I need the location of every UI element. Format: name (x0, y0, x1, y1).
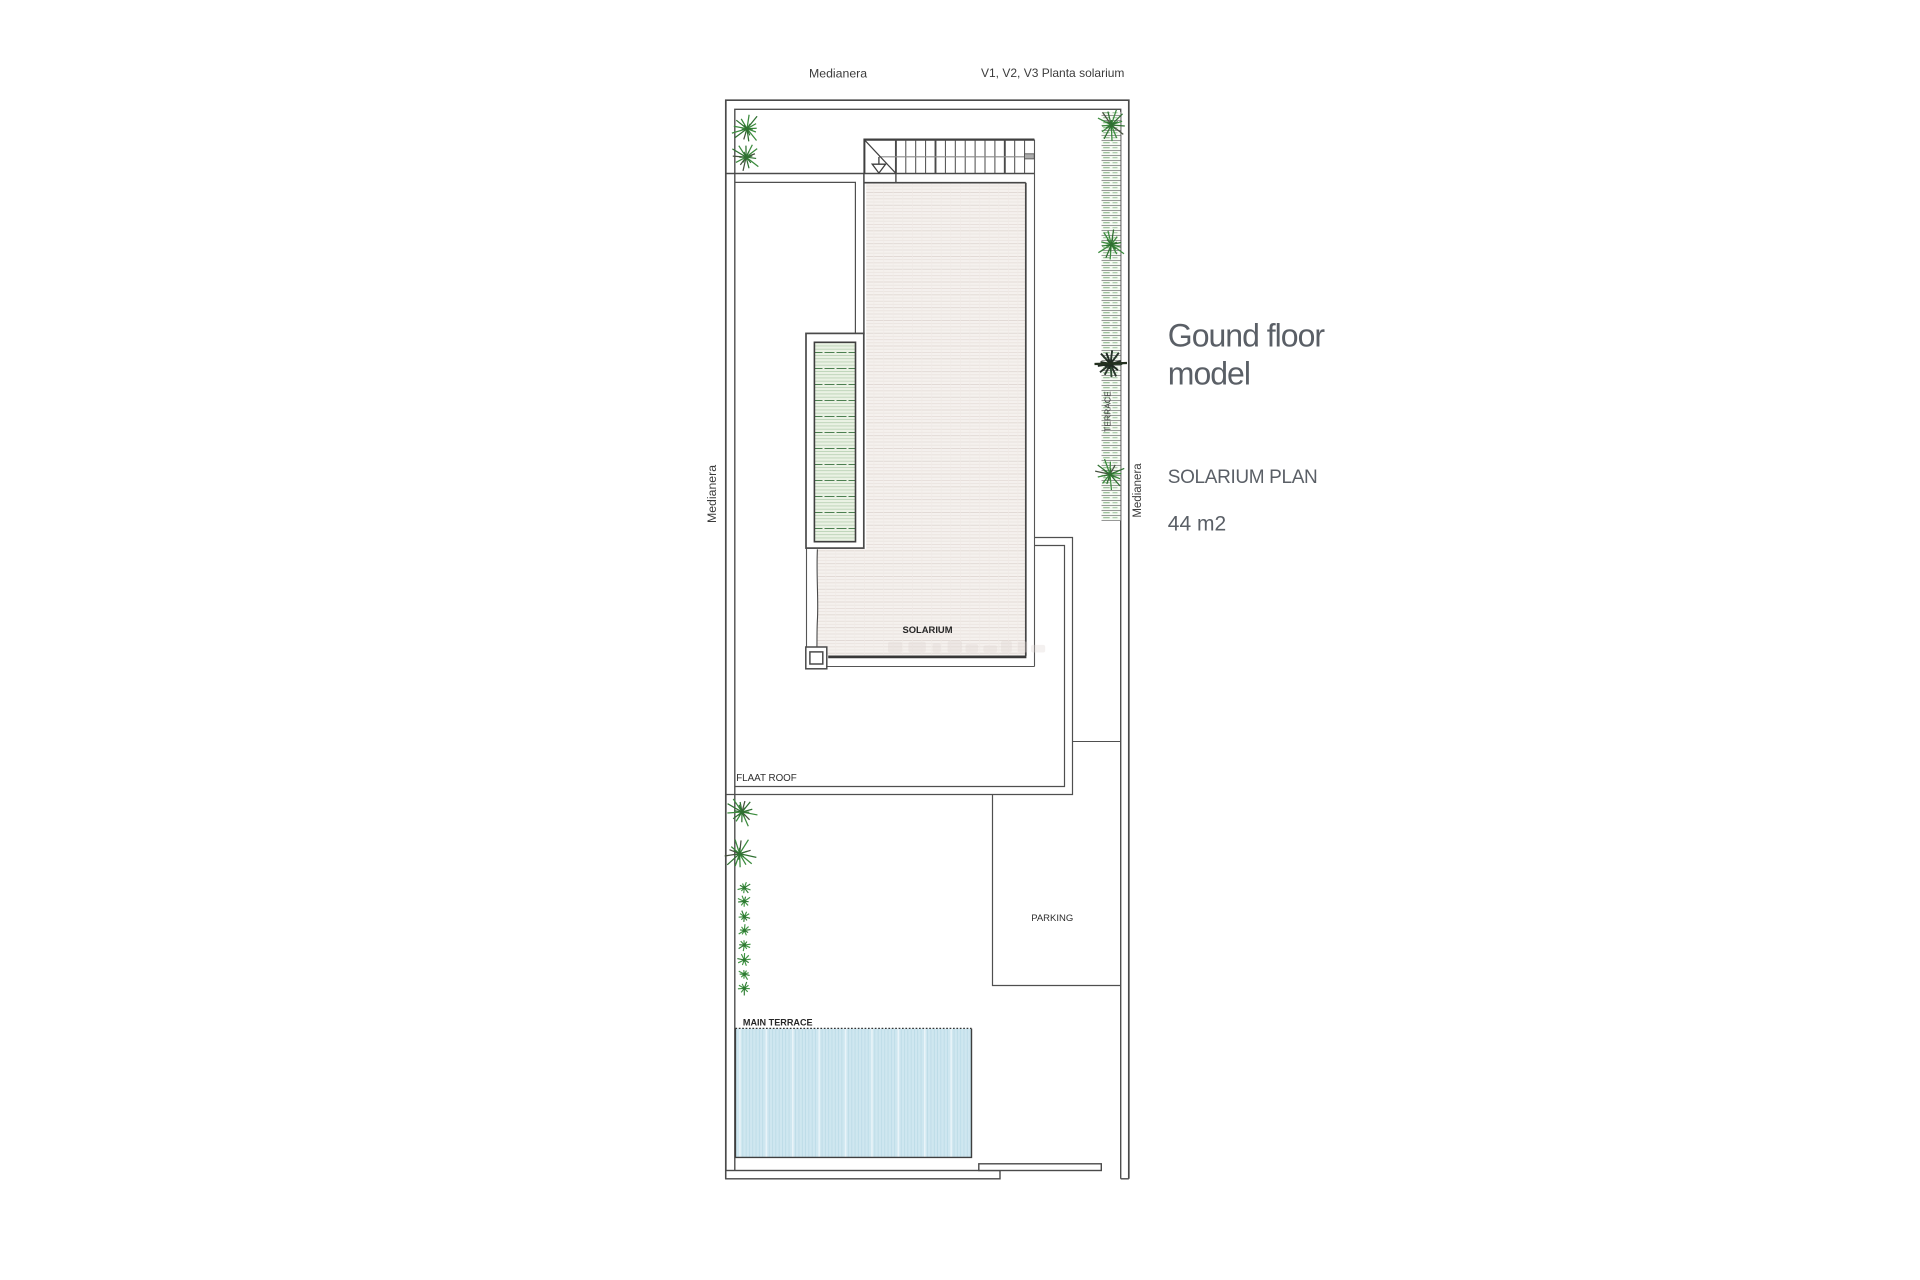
svg-text:FLAAT ROOF: FLAAT ROOF (736, 773, 797, 784)
svg-text:44 m2: 44 m2 (1168, 513, 1226, 536)
svg-text:PARKING: PARKING (1031, 913, 1073, 924)
svg-text:SOLARIUM: SOLARIUM (903, 624, 953, 635)
svg-text:Medianera: Medianera (705, 465, 719, 523)
svg-text:Medianera: Medianera (809, 67, 867, 81)
svg-text:model: model (1168, 355, 1250, 391)
svg-text:MAIN TERRACE: MAIN TERRACE (743, 1018, 813, 1028)
svg-text:TERRACE: TERRACE (1103, 391, 1113, 432)
svg-text:V1, V2, V3 Planta solarium: V1, V2, V3 Planta solarium (981, 66, 1124, 80)
svg-text:Gound floor: Gound floor (1168, 318, 1326, 354)
svg-text:SOLARIUM PLAN: SOLARIUM PLAN (1168, 467, 1318, 488)
svg-text:Medianera: Medianera (1132, 463, 1144, 518)
